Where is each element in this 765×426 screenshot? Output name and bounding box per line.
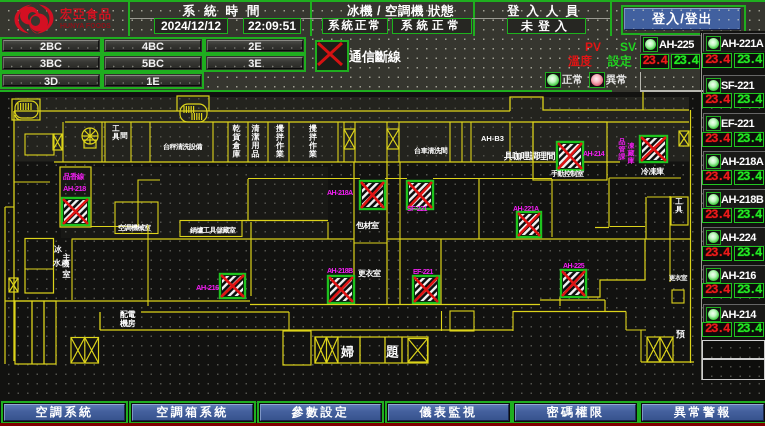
svg-text:具: 具 (111, 132, 120, 142)
svg-text:業: 業 (308, 150, 317, 160)
svg-text:具: 具 (674, 205, 683, 215)
svg-text:題: 題 (385, 343, 399, 360)
svg-text:機: 機 (61, 260, 70, 270)
svg-text:台車清洗間: 台車清洗間 (414, 147, 448, 156)
svg-text:AH-218B: AH-218B (327, 267, 353, 276)
svg-text:庫: 庫 (627, 156, 635, 166)
svg-text:品: 品 (252, 150, 260, 160)
svg-text:品香線: 品香線 (63, 172, 86, 182)
svg-text:AH-214: AH-214 (583, 150, 605, 159)
svg-text:機房: 機房 (119, 318, 136, 329)
svg-text:包材室: 包材室 (355, 220, 379, 231)
svg-text:課: 課 (618, 152, 627, 162)
svg-text:婦: 婦 (340, 343, 354, 360)
svg-text:預: 預 (675, 328, 685, 340)
svg-text:庫: 庫 (232, 149, 241, 160)
svg-text:AH-218: AH-218 (63, 185, 86, 194)
svg-text:台秤清洗設備: 台秤清洗設備 (163, 143, 203, 152)
svg-text:間: 間 (120, 131, 128, 141)
svg-text:水: 水 (52, 259, 62, 269)
svg-text:更衣室: 更衣室 (358, 268, 381, 279)
svg-text:鍋爐工具儲藏室: 鍋爐工具儲藏室 (189, 226, 236, 236)
svg-text:業: 業 (275, 150, 284, 160)
svg-text:冷凍庫: 冷凍庫 (641, 166, 664, 177)
svg-text:AH-216: AH-216 (196, 284, 219, 293)
svg-text:SF-221: SF-221 (407, 205, 428, 214)
svg-text:AH-B3: AH-B3 (481, 135, 504, 144)
svg-text:具咖哩調理間: 具咖哩調理間 (503, 150, 556, 162)
svg-text:空調機械室: 空調機械室 (118, 223, 151, 233)
svg-text:手動控制室: 手動控制室 (550, 169, 584, 179)
svg-text:AH-218A: AH-218A (327, 189, 353, 198)
svg-text:更衣室: 更衣室 (668, 273, 688, 282)
svg-text:室: 室 (63, 269, 71, 280)
